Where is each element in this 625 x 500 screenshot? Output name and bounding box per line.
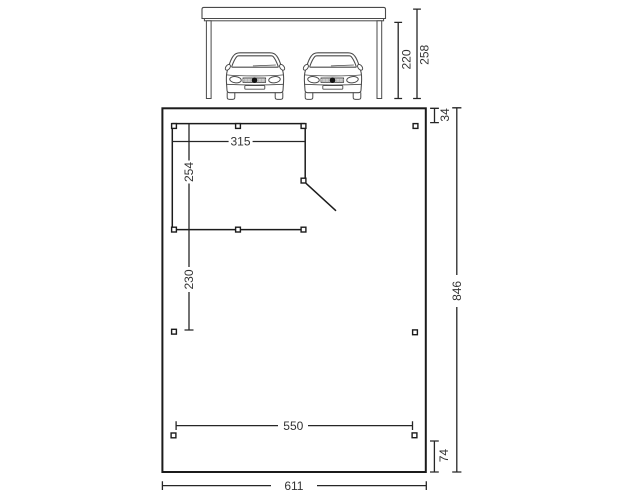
svg-text:846: 846	[450, 281, 464, 301]
svg-text:254: 254	[182, 162, 196, 182]
svg-text:611: 611	[284, 479, 303, 493]
svg-text:34: 34	[438, 108, 452, 122]
svg-text:230: 230	[182, 269, 196, 289]
svg-text:74: 74	[437, 449, 451, 463]
svg-text:550: 550	[283, 419, 303, 433]
svg-text:258: 258	[418, 44, 432, 64]
svg-text:315: 315	[230, 135, 250, 149]
svg-text:220: 220	[400, 49, 414, 69]
